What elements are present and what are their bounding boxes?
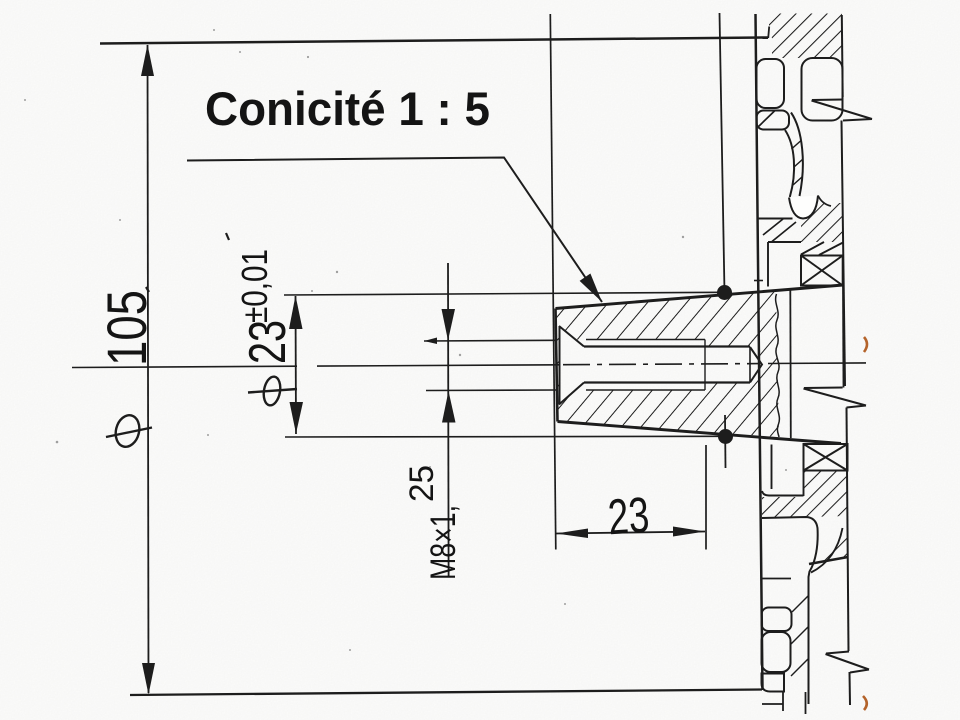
svg-text:23: 23 [606, 487, 651, 546]
svg-text:105: 105 [95, 290, 158, 366]
svg-text:±0,01: ±0,01 [234, 249, 275, 323]
svg-text:Conicité 1 : 5: Conicité 1 : 5 [205, 82, 490, 135]
svg-text:23: 23 [239, 320, 297, 364]
svg-text:25: 25 [403, 465, 441, 502]
svg-text:M8×1,: M8×1, [424, 505, 463, 580]
